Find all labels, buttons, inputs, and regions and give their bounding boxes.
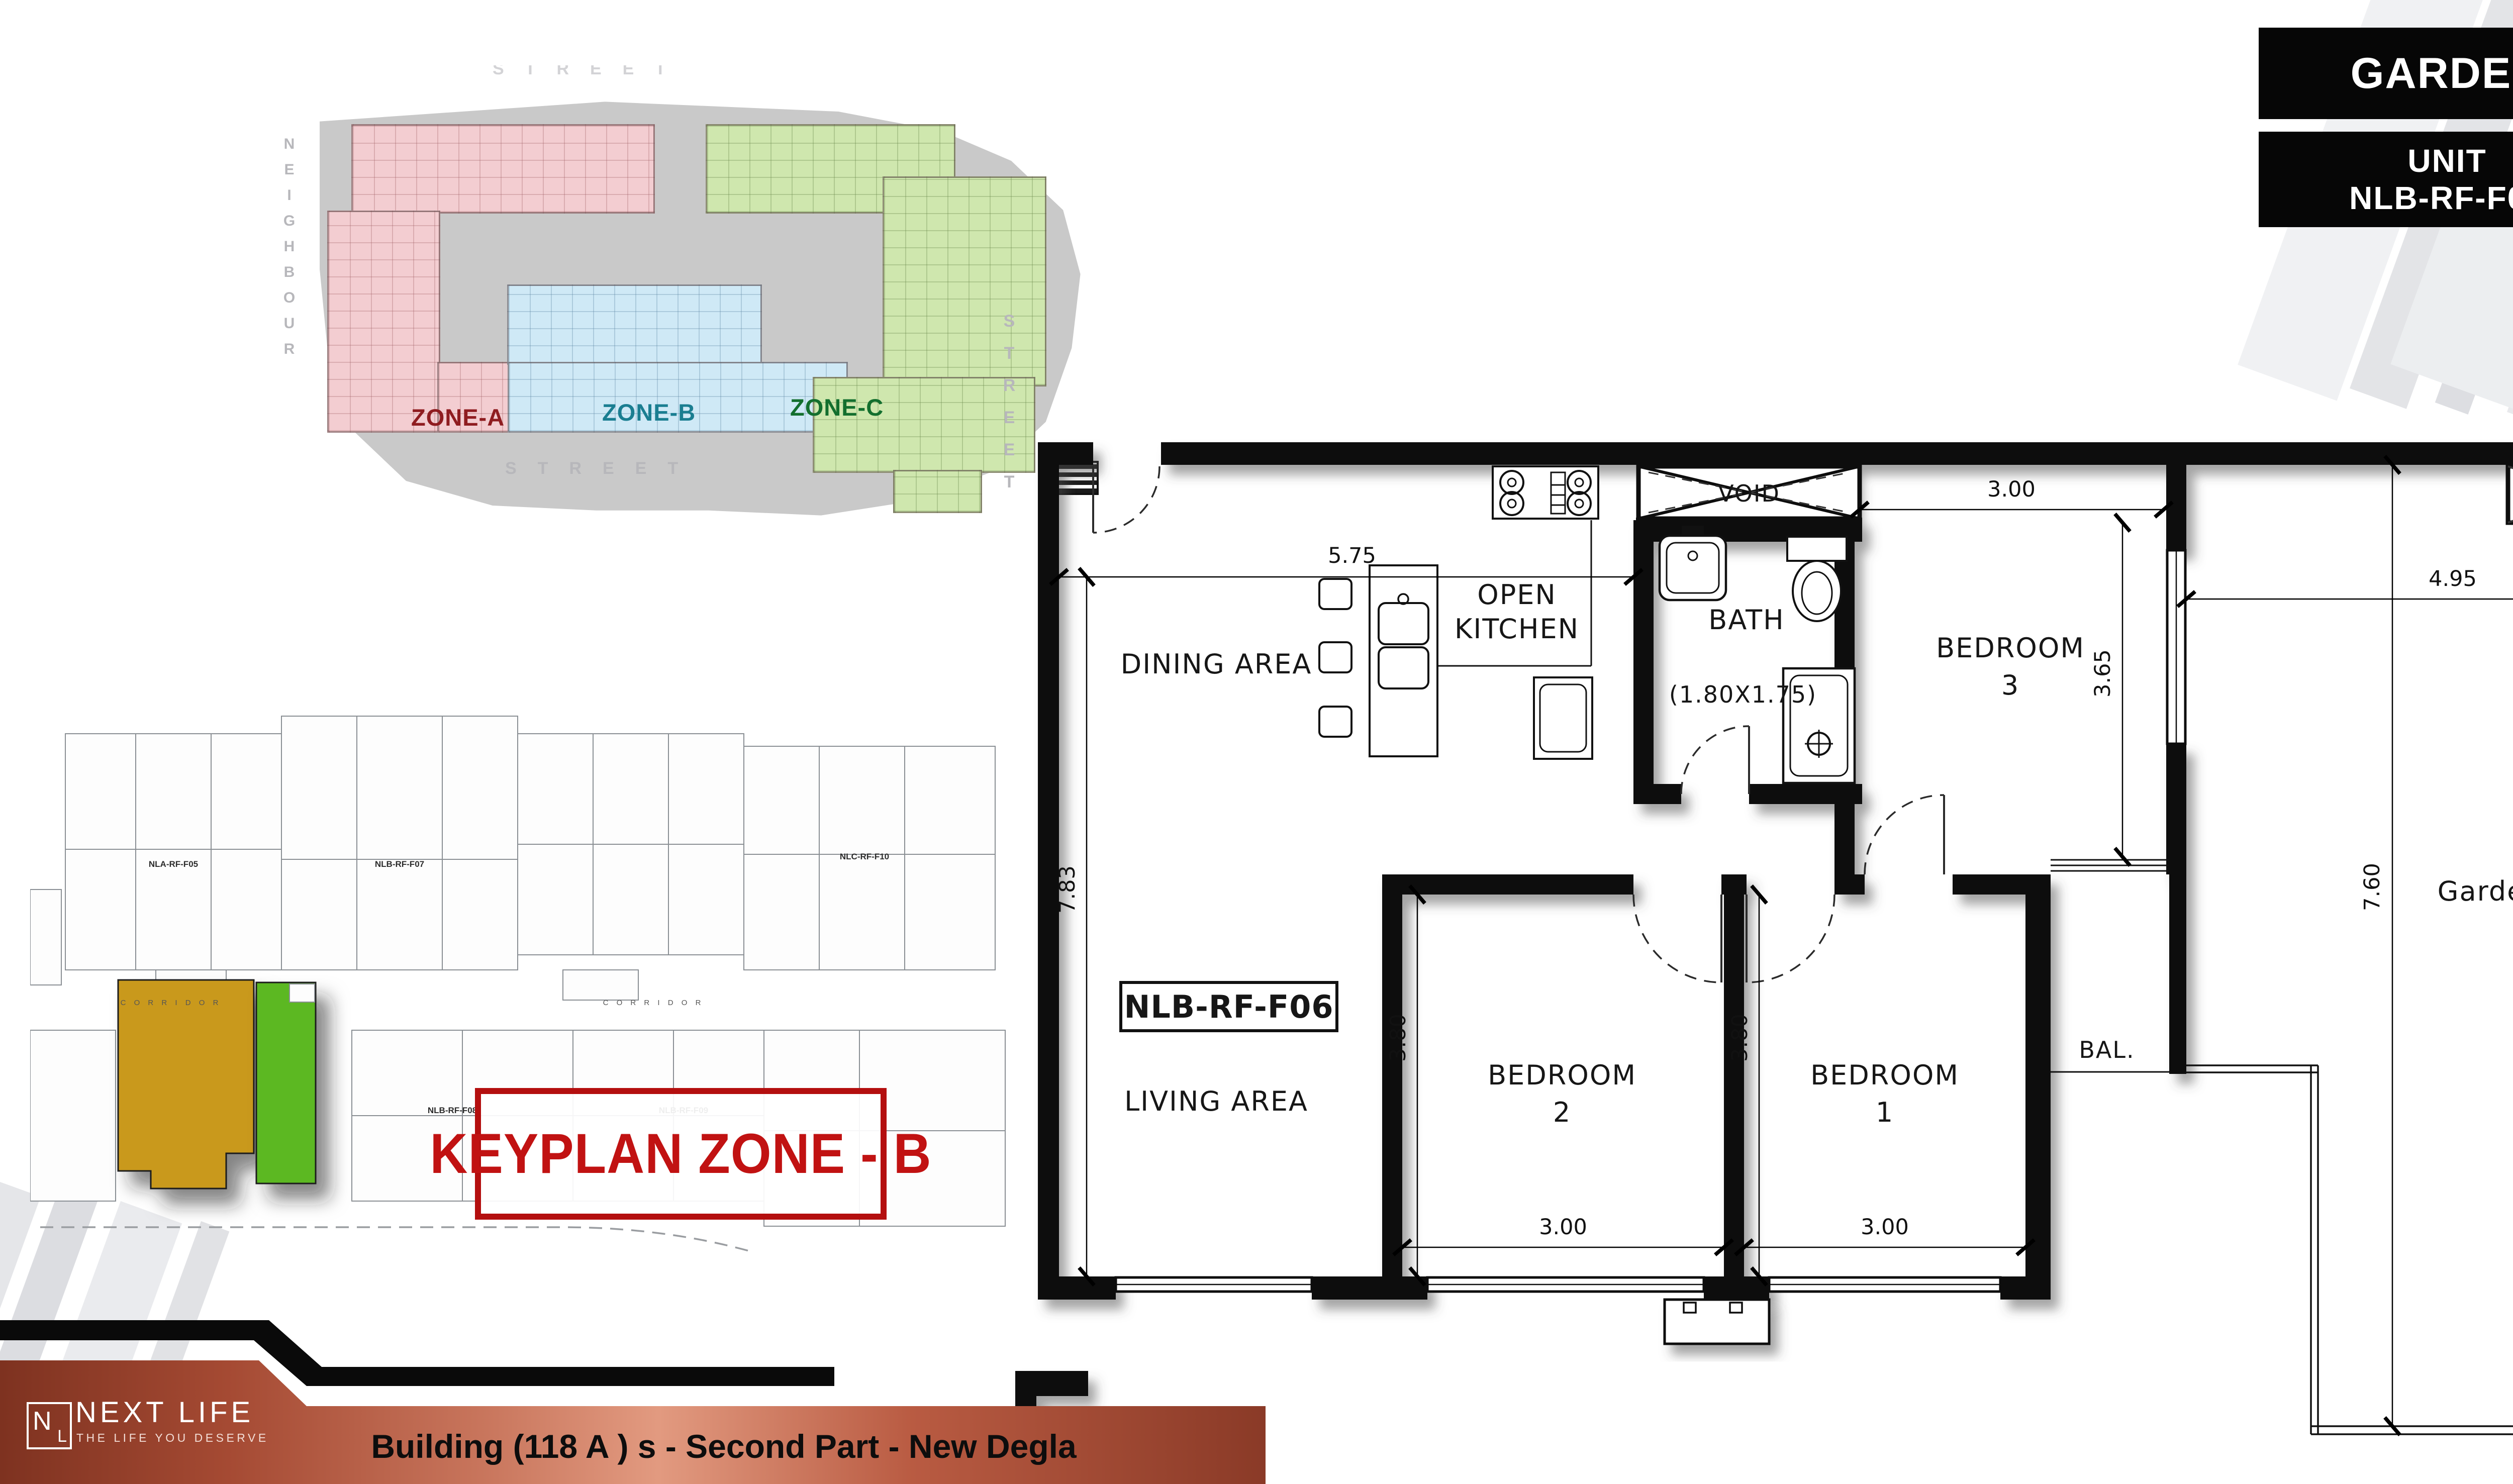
balcony-label: BAL.	[2079, 1036, 2135, 1063]
corridor-label: C O R R I D O R	[603, 999, 704, 1007]
zone-b-label: ZONE-B	[602, 399, 696, 426]
bedroom3-label-2: 3	[2001, 669, 2019, 701]
living-area-label: LIVING AREA	[1124, 1085, 1308, 1117]
kitchen-island	[1370, 565, 1437, 756]
washer-icon	[1534, 677, 1592, 759]
bedroom2-label-1: BEDROOM	[1488, 1059, 1636, 1091]
unit-label: UNIT	[2407, 142, 2486, 179]
unit-code-box: NLB-RF-F06	[1121, 982, 1337, 1031]
keyplan-highlight-gold-unit	[118, 980, 254, 1189]
keyplan-unit-label: NLB-RF-F07	[375, 859, 424, 869]
open-kitchen-label-1: OPEN	[1477, 579, 1557, 611]
dim-dining-width: 5.75	[1328, 543, 1376, 568]
bath-sink-icon	[1660, 526, 1726, 600]
keyplan-unit-label: NLC-RF-F10	[840, 852, 889, 861]
bath-label: BATH	[1708, 604, 1784, 636]
plan-unit-code: NLB-RF-F06	[1124, 988, 1334, 1025]
zone-c-building-tail	[893, 470, 982, 513]
keyplan-title-box: KEYPLAN ZONE - B	[475, 1088, 887, 1220]
zone-c-building-right	[883, 176, 1046, 386]
bedroom3-label-1: BEDROOM	[1936, 632, 2085, 664]
zone-a-building-top	[351, 124, 655, 214]
logo-monogram-n: N	[33, 1406, 52, 1436]
dim-bed2-width: 3.00	[1539, 1215, 1587, 1240]
floor-plan: VOID VOID	[1010, 437, 2513, 1484]
toilet-icon	[1787, 537, 1847, 621]
dim-bed3-width: 3.00	[1987, 477, 2036, 502]
ac-ledge	[1665, 1300, 1769, 1344]
garden-fence	[2186, 465, 2513, 1472]
keyplan-title: KEYPLAN ZONE - B	[430, 1122, 931, 1186]
void-label-1: VOID	[1718, 480, 1780, 507]
dim-bed1-height: 3.80	[1727, 1014, 1753, 1062]
bedroom2-label-2: 2	[1553, 1097, 1571, 1128]
unit-badge: UNIT NLB-RF-F06	[2259, 132, 2513, 227]
dim-bed3-height: 3.65	[2090, 649, 2115, 698]
kitchen-stools	[1319, 579, 1351, 737]
keyplan-unit-label: NLB-RF-F08	[428, 1106, 477, 1115]
void-box-garden	[2508, 466, 2513, 523]
dim-garden-width: 4.95	[2429, 566, 2477, 591]
brand-name: NEXT LIFE	[75, 1396, 254, 1429]
dining-area-label: DINING AREA	[1121, 648, 1312, 680]
dim-garden-height: 7.60	[2360, 863, 2385, 911]
garden-area-badge: GARDEN	[2259, 28, 2513, 119]
zone-c-label: ZONE-C	[790, 393, 884, 421]
zone-b-building-upper	[507, 284, 762, 365]
street-top-label: STREET	[493, 65, 687, 78]
open-kitchen-label-2: KITCHEN	[1455, 613, 1579, 645]
dim-bed1-width: 3.00	[1861, 1215, 1909, 1240]
street-bottom-label: STREET	[505, 459, 699, 478]
site-boundary-dashed-line	[40, 1227, 950, 1251]
zone-a-label: ZONE-A	[411, 404, 505, 431]
unit-code: NLB-RF-F06	[2349, 179, 2513, 217]
bath-dimension-label: (1.80X1.75)	[1669, 681, 1817, 708]
stove-icon	[1493, 466, 1598, 519]
logo-monogram-l: L	[57, 1427, 67, 1446]
nextlife-logo: N L	[27, 1402, 72, 1449]
dim-unit-height: 7.83	[1055, 865, 1080, 914]
zone-a-building-left	[327, 211, 440, 433]
keyplan-highlight-green-unit	[256, 982, 316, 1183]
project-title: Building (118 A ) s - Second Part - New …	[322, 1427, 1126, 1465]
garden-roof-label: Garden ROOF	[2438, 875, 2513, 907]
garden-label: GARDEN	[2351, 49, 2513, 98]
brand-tagline: THE LIFE YOU DESERVE	[76, 1431, 269, 1445]
corridor-label: C O R R I D O R	[121, 999, 222, 1007]
bedroom1-label-2: 1	[1876, 1097, 1894, 1128]
dim-bed2-height: 3.80	[1386, 1014, 1411, 1062]
keyplan-unit-label: NLA-RF-F05	[149, 859, 198, 869]
bedroom1-label-1: BEDROOM	[1810, 1059, 1959, 1091]
neighbour-street-label: NEIGHBOUR	[280, 136, 298, 366]
